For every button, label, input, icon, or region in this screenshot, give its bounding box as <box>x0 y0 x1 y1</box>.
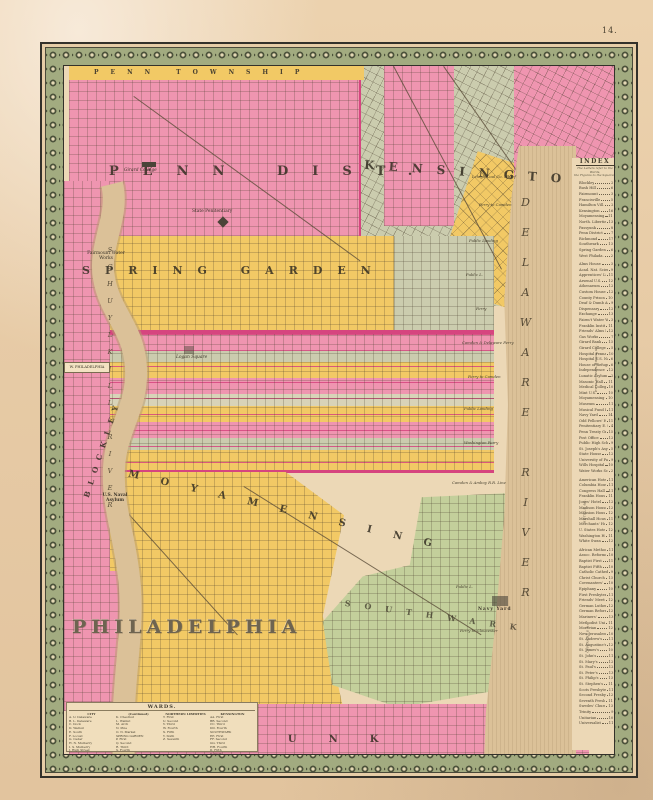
index-panel: INDEX The Letters refer to the Wards, th… <box>572 158 615 750</box>
wards-col-city: CITY A. U. DelawareB. L. DelawareC. Dock… <box>69 712 114 755</box>
paper-background: 14. <box>0 0 653 800</box>
label-spring-garden: SPRING GARDEN <box>82 264 386 277</box>
shore-note: Public L. <box>466 272 483 277</box>
shore-note: Ferry to Camden <box>468 374 501 379</box>
index-section-label: CHURCHES &c. <box>586 622 590 653</box>
landmark-fairmount-water-works: Fairmount Water Works <box>86 252 126 262</box>
logan-square-block <box>184 346 194 354</box>
index-title: INDEX <box>576 158 614 166</box>
delaware-river-label: DELAWARE RIVER <box>519 196 532 716</box>
shore-note: Public Landing <box>469 238 498 243</box>
ward-entry: S. Fourth <box>116 749 161 753</box>
index-section-label: HOTELS &c. <box>582 499 586 524</box>
index-row: Universalist11 F <box>579 721 615 727</box>
shore-note: Ferry to Camden <box>479 202 512 207</box>
map-title: PHILADELPHIA <box>72 616 301 638</box>
map-canvas: DELAWARE RIVER SCHUYLKILL RIVER Lehigh C… <box>64 66 615 755</box>
wards-table-title: WARDS. <box>69 704 255 711</box>
index-section-hotels: HOTELS &c. American Hotel11 E Columbia H… <box>579 478 615 545</box>
label-penn-township: PENN TOWNSHIP <box>94 69 311 76</box>
ward-entry: Z. Seventh <box>163 738 208 742</box>
scale-tick: 1500 <box>194 754 202 755</box>
index-section-public-buildings: PUBLIC BUILDINGS &c. Alms House3 G Acad.… <box>579 262 615 475</box>
index-section-churches: CHURCHES &c. African Methodist11 F Assoc… <box>579 548 615 727</box>
landmark-navy-yard: Navy Yard <box>478 608 512 613</box>
wards-col-northern-liberties: NORTHERN LIBERTIES T. FirstU. SecondV. T… <box>163 712 208 755</box>
map-inner-area: DELAWARE RIVER SCHUYLKILL RIVER Lehigh C… <box>63 65 615 755</box>
index-row: White Swan12 C <box>579 539 615 545</box>
shore-note: Washington Ferry <box>464 440 498 445</box>
schuylkill-river-label: SCHUYLKILL RIVER <box>106 246 114 666</box>
girard-college-building <box>142 162 156 167</box>
navy-yard-block <box>492 596 508 606</box>
index-row: West Philada.2 D <box>579 254 615 260</box>
shore-note: Public L. <box>456 584 473 589</box>
map-frame: DELAWARE RIVER SCHUYLKILL RIVER Lehigh C… <box>40 42 638 778</box>
landmark-logan-square: Logan Square <box>176 356 207 361</box>
landmark-naval-asylum: U.S. Naval Asylum <box>98 494 132 504</box>
shore-note: Camden & Delaware Ferry <box>462 340 514 345</box>
scale-tick: 2000 <box>224 754 232 755</box>
index-section-label: PUBLIC BUILDINGS &c. <box>594 344 598 392</box>
label-west-philadelphia: W. PHILADELPHIA <box>64 362 110 373</box>
shore-note: Public Landing <box>464 406 493 411</box>
border-guilloche-band: DELAWARE RIVER SCHUYLKILL RIVER Lehigh C… <box>45 47 633 773</box>
scale-tick: 0 <box>110 754 112 755</box>
scale-tick: 500 <box>82 754 88 755</box>
landmark-state-penitentiary: State Penitentiary <box>192 210 232 215</box>
wards-col-kensington: KENSINGTON AA. FirstBB. SecondCC. ThirdD… <box>210 712 255 755</box>
landmark-girard-college: Girard College <box>124 169 157 174</box>
scale-bar: 5000500100015002000 Scale of Feet. <box>82 754 232 755</box>
shore-note: Camden & Amboy R.R. Line <box>452 480 506 485</box>
wards-col-city2: (Continued) K. ChestnutL. WalnutM. ArchN… <box>116 712 161 755</box>
shore-note: Ferry <box>476 306 486 311</box>
scale-tick: 1000 <box>164 754 172 755</box>
ward-entry: J. High Street <box>69 749 114 753</box>
scale-tick: 500 <box>135 754 141 755</box>
wards-table: WARDS. CITY A. U. DelawareB. L. Delaware… <box>66 702 258 752</box>
index-note-2: the Figures to the Squares. <box>572 174 615 178</box>
index-row: Water Works Schl.2 B <box>579 469 615 475</box>
scale-tick-labels: 5000500100015002000 <box>82 754 232 755</box>
index-section-districts: Blockley2 E Bush Hill6 C Fairmount3 B <box>579 181 615 259</box>
page-number: 14. <box>602 26 618 35</box>
